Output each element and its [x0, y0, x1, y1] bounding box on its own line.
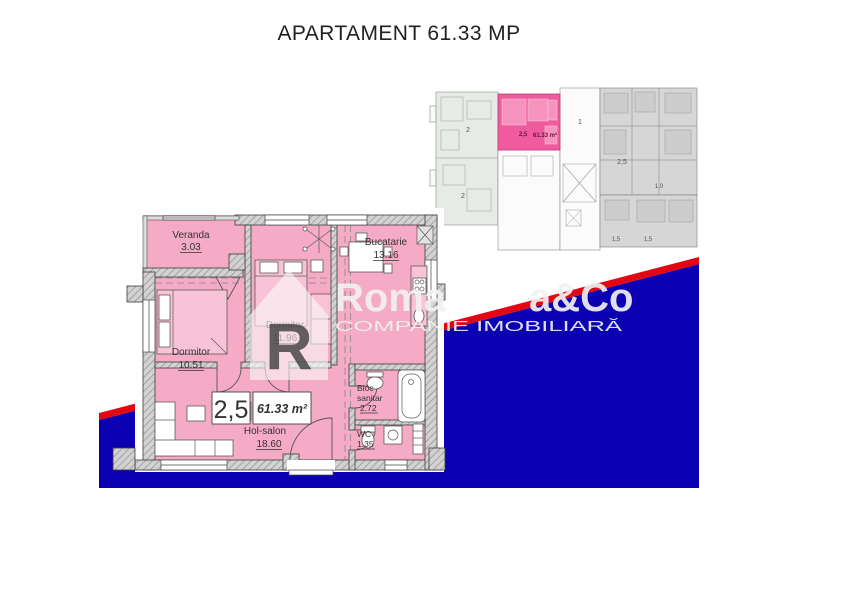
room-name: Bloc [357, 383, 374, 393]
pilaster [429, 448, 445, 470]
highlight-area-label: 61.33 m² [533, 132, 557, 139]
room-name: Dormitor [172, 347, 211, 358]
unit-label: 2 [466, 127, 470, 134]
entry-opening [287, 460, 335, 470]
room-name: sanitar [357, 393, 383, 403]
room-area: 10.51 [178, 360, 203, 371]
site-plan-highlighted-unit: 2,5 61.33 m² [498, 94, 560, 150]
room-name: Veranda [172, 230, 210, 241]
balcony [430, 170, 436, 186]
type-label: 2,5 [214, 396, 249, 424]
balcony [430, 106, 436, 122]
pilaster [113, 448, 135, 470]
room-area: 1.35 [357, 439, 374, 449]
room-area: 2.72 [360, 403, 377, 413]
page: APARTAMENT 61.33 MP 2 2 [0, 0, 852, 602]
room-area: 3.03 [181, 242, 201, 253]
floor-plan-image: 2 2 1 2,5 1,0 [99, 68, 699, 488]
total-area-label: 61.33 m² [257, 402, 308, 416]
unit-label: 1,5 [612, 237, 621, 243]
radiator-icon [413, 424, 423, 454]
washing-machine-icon [384, 426, 402, 444]
nightstand-icon [311, 260, 323, 272]
highlight-type-label: 2,5 [519, 132, 528, 138]
unit-label: 1,5 [644, 237, 653, 243]
watermark-logo-letter: R [265, 309, 313, 383]
unit-label: 1,0 [655, 184, 664, 190]
entry-threshold [289, 470, 333, 475]
room-name: WC [357, 429, 371, 439]
sofa-icon [155, 440, 233, 456]
unit-label: 2,5 [617, 159, 627, 166]
pilaster [127, 286, 143, 302]
room-area: 13.16 [373, 250, 398, 261]
watermark-brand-right: a&Co [529, 276, 633, 320]
site-plan: 2 2 1 2,5 1,0 [430, 88, 697, 250]
watermark-brand-left: Roma [335, 276, 447, 320]
room-name: Hol-salon [244, 426, 286, 437]
page-title: APARTAMENT 61.33 MP [99, 22, 699, 46]
watermark-tagline: COMPANIE IMOBILIARĂ [335, 318, 623, 335]
corridor-block [498, 150, 560, 250]
side-table-icon [187, 406, 205, 421]
unit-label: 1 [578, 119, 582, 126]
room-name: Bucatarie [365, 237, 408, 248]
room-area: 18.60 [256, 439, 281, 450]
unit-label: 2 [461, 193, 465, 200]
pilaster [229, 254, 245, 270]
